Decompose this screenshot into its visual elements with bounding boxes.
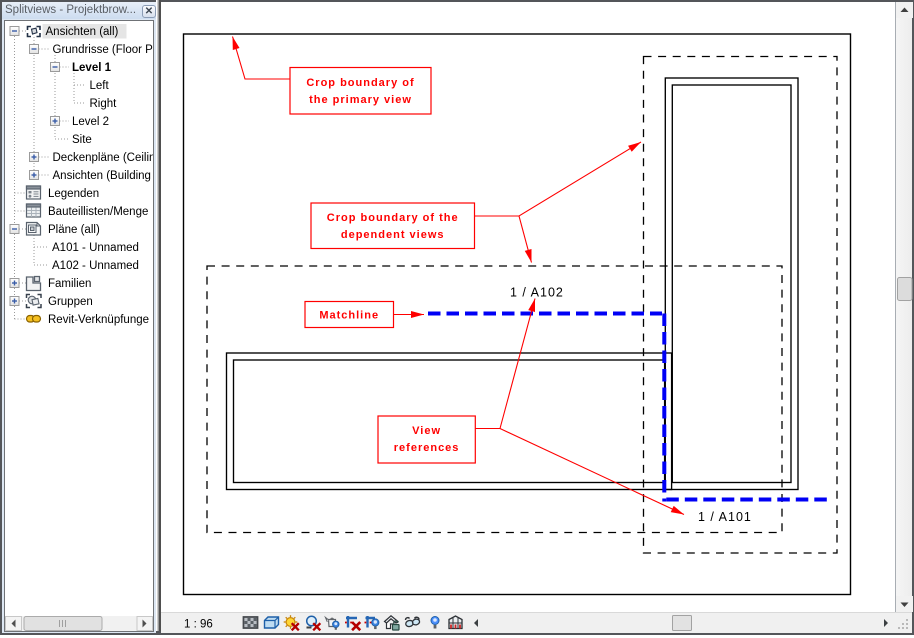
svg-text:1 / A101: 1 / A101: [698, 510, 752, 524]
svg-text:dependent views: dependent views: [341, 229, 445, 241]
svg-text:Crop boundary of: Crop boundary of: [306, 77, 414, 89]
svg-text:Matchline: Matchline: [319, 310, 379, 322]
svg-text:1 / A102: 1 / A102: [510, 286, 564, 300]
svg-text:references: references: [394, 442, 460, 454]
svg-text:View: View: [412, 425, 441, 437]
svg-text:Crop boundary of the: Crop boundary of the: [327, 212, 459, 224]
svg-text:the primary view: the primary view: [309, 94, 412, 106]
